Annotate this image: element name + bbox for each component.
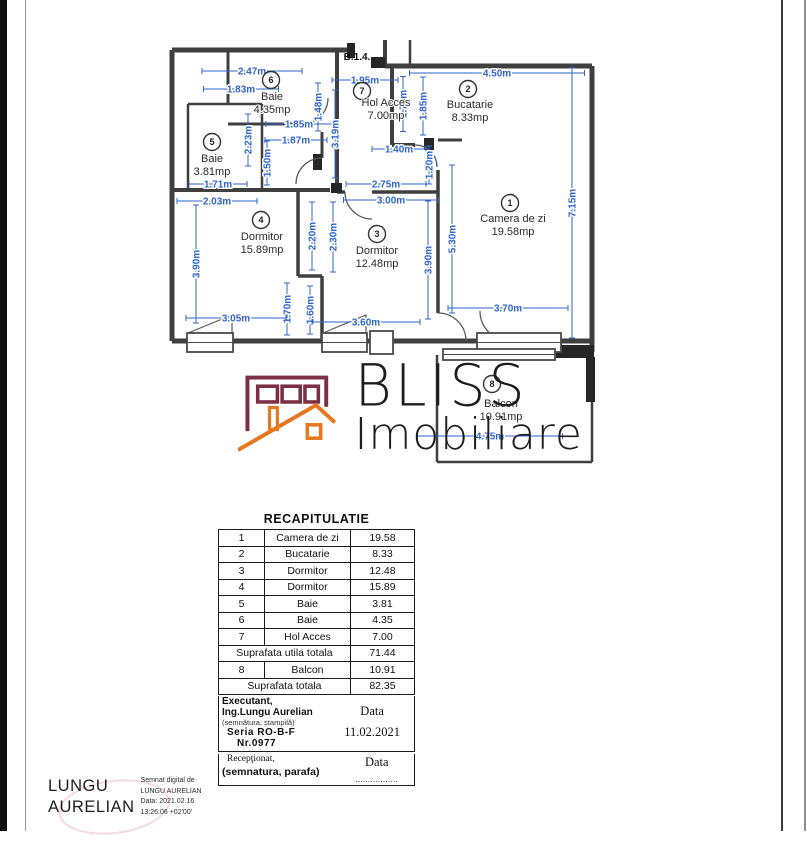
svg-text:Camera de zi: Camera de zi — [480, 213, 545, 225]
recap-cell: 7.00 — [350, 629, 414, 646]
svg-text:15.89mp: 15.89mp — [241, 244, 284, 256]
dimension-hol_bottom_a: 2.75m — [346, 180, 426, 191]
svg-text:2.20m: 2.20m — [308, 222, 319, 250]
svg-text:5: 5 — [209, 137, 214, 147]
svg-text:3.70m: 3.70m — [494, 304, 522, 315]
logo-text: BLISS Imobiliare — [354, 358, 583, 457]
dimension-baie6_top_a: 2.47m — [202, 67, 302, 78]
recap-row: Suprafata utila totala71.44 — [219, 645, 415, 662]
dimension-dorm4_jog: 1.70m — [283, 283, 294, 335]
recap-total-value: 82.35 — [350, 678, 414, 695]
logo-text-line1: BLISS — [354, 357, 583, 415]
recap-row: 1Camera de zi19.58 — [219, 530, 415, 547]
svg-text:3.05m: 3.05m — [222, 314, 250, 325]
svg-text:5.30m: 5.30m — [448, 225, 459, 253]
room-label-baie: 6Baie4.35mp — [254, 72, 291, 117]
recap-cell: 12.48 — [350, 563, 414, 580]
recap-cell: Balcon — [264, 662, 350, 679]
room-label-hol-acces: 7Hol Acces7.00mp — [354, 83, 411, 123]
svg-text:12.48mp: 12.48mp — [356, 258, 399, 270]
svg-text:1.83m: 1.83m — [227, 85, 255, 96]
svg-text:1.85m: 1.85m — [285, 120, 313, 131]
dimension-dorm4_left: 3.90m — [192, 205, 203, 323]
dimension-dorm3_bottom: 3.60m — [312, 318, 420, 329]
svg-text:1.60m: 1.60m — [306, 296, 317, 324]
wall-pier — [313, 154, 322, 170]
recap-total-label: Suprafata totala — [219, 678, 351, 695]
recap-title: RECAPITULATIE — [218, 512, 415, 526]
room-label-baie: 5Baie3.81mp — [194, 134, 231, 179]
dimension-hol_bottom_b: 3.00m — [344, 196, 439, 207]
unit-label: B.1.4. — [344, 52, 371, 63]
svg-text:1.48m: 1.48m — [314, 93, 325, 121]
svg-text:2.30m: 2.30m — [329, 223, 340, 251]
recap-row: 5Baie3.81 — [219, 596, 415, 613]
digital-signature: LUNGU AURELIAN Semnat digital de LUNGU A… — [48, 776, 202, 819]
executant-box: Executant, Ing.Lungu Aurelian (semnătura… — [218, 696, 415, 752]
dimension-bucatarie_niche_w: 1.40m — [372, 145, 426, 156]
svg-text:Hol Acces: Hol Acces — [362, 97, 411, 109]
recap-cell: 10.91 — [350, 662, 414, 679]
executant-date: Data 11.02.2021 — [344, 704, 400, 740]
wall-pier — [586, 357, 595, 402]
svg-text:1.87m: 1.87m — [282, 136, 310, 147]
recap-row: 7Hol Acces7.00 — [219, 629, 415, 646]
dimension-livingroom_bottom: 3.70m — [448, 304, 568, 315]
svg-text:2.23m: 2.23m — [244, 126, 255, 154]
recap-total-value: 71.44 — [350, 645, 414, 662]
dimension-baie5_door: 1.50m — [263, 141, 274, 185]
svg-text:2.03m: 2.03m — [203, 197, 231, 208]
recap-cell: 4 — [219, 579, 265, 596]
recap-row: 3Dormitor12.48 — [219, 563, 415, 580]
svg-text:Dormitor: Dormitor — [241, 231, 284, 243]
dimension-right_side: 7.15m — [568, 68, 579, 338]
svg-text:1.40m: 1.40m — [385, 145, 413, 156]
svg-text:7.15m: 7.15m — [568, 189, 579, 217]
recap-table: 1Camera de zi19.582Bucatarie8.333Dormito… — [218, 529, 415, 695]
recap-cell: 2 — [219, 546, 265, 563]
svg-text:Baie: Baie — [261, 91, 283, 103]
svg-text:4.50m: 4.50m — [483, 69, 511, 80]
svg-text:Dormitor: Dormitor — [356, 245, 399, 257]
house-icon — [238, 358, 336, 468]
bliss-logo: BLISS Imobiliare — [238, 358, 583, 470]
svg-text:1: 1 — [507, 198, 512, 208]
recap-cell: Camera de zi — [264, 530, 350, 547]
recap-cell: 8 — [219, 662, 265, 679]
svg-text:4.35mp: 4.35mp — [254, 104, 291, 116]
dimension-bucatarie_left_h: 1.85m — [419, 77, 430, 135]
executant-date-label: Data — [344, 704, 400, 719]
svg-text:3.90m: 3.90m — [192, 250, 203, 278]
recap-cell: 6 — [219, 612, 265, 629]
recap-section: RECAPITULATIE 1Camera de zi19.582Bucatar… — [218, 512, 415, 786]
dimension-dorm4_mid: 2.20m — [308, 202, 319, 270]
recap-cell: Bucatarie — [264, 546, 350, 563]
receptionat-date-label: Data — [356, 755, 399, 770]
dimension-bucatarie_niche_h: 1.20m — [425, 146, 436, 184]
dimension-dorm4_top: 2.03m — [177, 197, 257, 208]
dimension-dorm3_right: 3.90m — [424, 201, 435, 319]
wall-pier-box — [370, 331, 393, 354]
recap-cell: 8.33 — [350, 546, 414, 563]
room-label-dormitor: 4Dormitor15.89mp — [241, 212, 284, 257]
recap-cell: 5 — [219, 596, 265, 613]
svg-text:6: 6 — [268, 75, 273, 85]
recap-cell: 3.81 — [350, 596, 414, 613]
svg-text:2.75m: 2.75m — [372, 180, 400, 191]
svg-text:3.60m: 3.60m — [352, 318, 380, 329]
svg-text:3.81mp: 3.81mp — [194, 166, 231, 178]
svg-text:1.85m: 1.85m — [419, 92, 430, 120]
dimension-dorm3_mid: 2.30m — [329, 202, 340, 272]
recap-cell: Dormitor — [264, 563, 350, 580]
svg-text:Baie: Baie — [201, 153, 223, 165]
recap-total-label: Suprafata utila totala — [219, 645, 351, 662]
recap-row: 4Dormitor15.89 — [219, 579, 415, 596]
receptionat-date-dots: ................. — [356, 775, 399, 784]
svg-text:7.00mp: 7.00mp — [368, 110, 405, 122]
svg-text:1.20m: 1.20m — [425, 151, 436, 179]
svg-text:7: 7 — [359, 86, 364, 96]
svg-text:1.70m: 1.70m — [283, 295, 294, 323]
wall-pier — [331, 183, 342, 193]
door-swing-arc — [438, 313, 466, 341]
svg-text:3.90m: 3.90m — [424, 246, 435, 274]
recap-cell: 1 — [219, 530, 265, 547]
recap-row: 2Bucatarie8.33 — [219, 546, 415, 563]
room-label-camera-de-zi: 1Camera de zi19.58mp — [480, 195, 545, 239]
executant-date-value: 11.02.2021 — [344, 725, 400, 740]
signature-details: Semnat digital de LUNGU AURELIAN Data: 2… — [141, 776, 202, 818]
svg-text:4: 4 — [258, 215, 263, 225]
svg-text:3.00m: 3.00m — [377, 196, 405, 207]
recap-cell: Baie — [264, 612, 350, 629]
svg-text:3: 3 — [374, 229, 379, 239]
svg-text:3.19m: 3.19m — [331, 120, 342, 148]
door-swing-arc — [345, 192, 372, 219]
dimension-dorm4_bottom: 3.05m — [186, 314, 286, 325]
signature-name: LUNGU AURELIAN — [48, 776, 135, 819]
recap-cell: 3 — [219, 563, 265, 580]
dimension-bucatarie_top: 4.50m — [410, 69, 585, 80]
dimension-baie5_h: 2.23m — [244, 114, 255, 166]
receptionat-box: Recepţionat, (semnatura, parafa) Data ..… — [218, 754, 415, 786]
dimension-baie5_w: 1.87m — [265, 136, 327, 147]
svg-text:Bucatarie: Bucatarie — [447, 99, 493, 111]
recap-cell: Hol Acces — [264, 629, 350, 646]
recap-cell: 4.35 — [350, 612, 414, 629]
svg-text:2.47m: 2.47m — [238, 67, 266, 78]
wall-pier — [371, 57, 385, 68]
recap-cell: 15.89 — [350, 579, 414, 596]
recap-row: Suprafata totala82.35 — [219, 678, 415, 695]
svg-text:1.71m: 1.71m — [204, 180, 232, 191]
svg-text:1.50m: 1.50m — [263, 149, 274, 177]
recap-row: 8Balcon10.91 — [219, 662, 415, 679]
recap-cell: Dormitor — [264, 579, 350, 596]
svg-text:8.33mp: 8.33mp — [452, 112, 489, 124]
dimension-dorm3_jog: 1.60m — [306, 286, 317, 334]
svg-text:2: 2 — [465, 84, 470, 94]
room-label-dormitor: 3Dormitor12.48mp — [356, 226, 399, 271]
recap-row: 6Baie4.35 — [219, 612, 415, 629]
recap-cell: 7 — [219, 629, 265, 646]
dimension-livingroom_left: 5.30m — [448, 165, 459, 313]
recap-cell: 19.58 — [350, 530, 414, 547]
receptionat-date: Data ................. — [356, 755, 399, 784]
svg-text:19.58mp: 19.58mp — [492, 226, 535, 238]
room-label-bucatarie: 2Bucatarie8.33mp — [447, 81, 493, 125]
recap-cell: Baie — [264, 596, 350, 613]
